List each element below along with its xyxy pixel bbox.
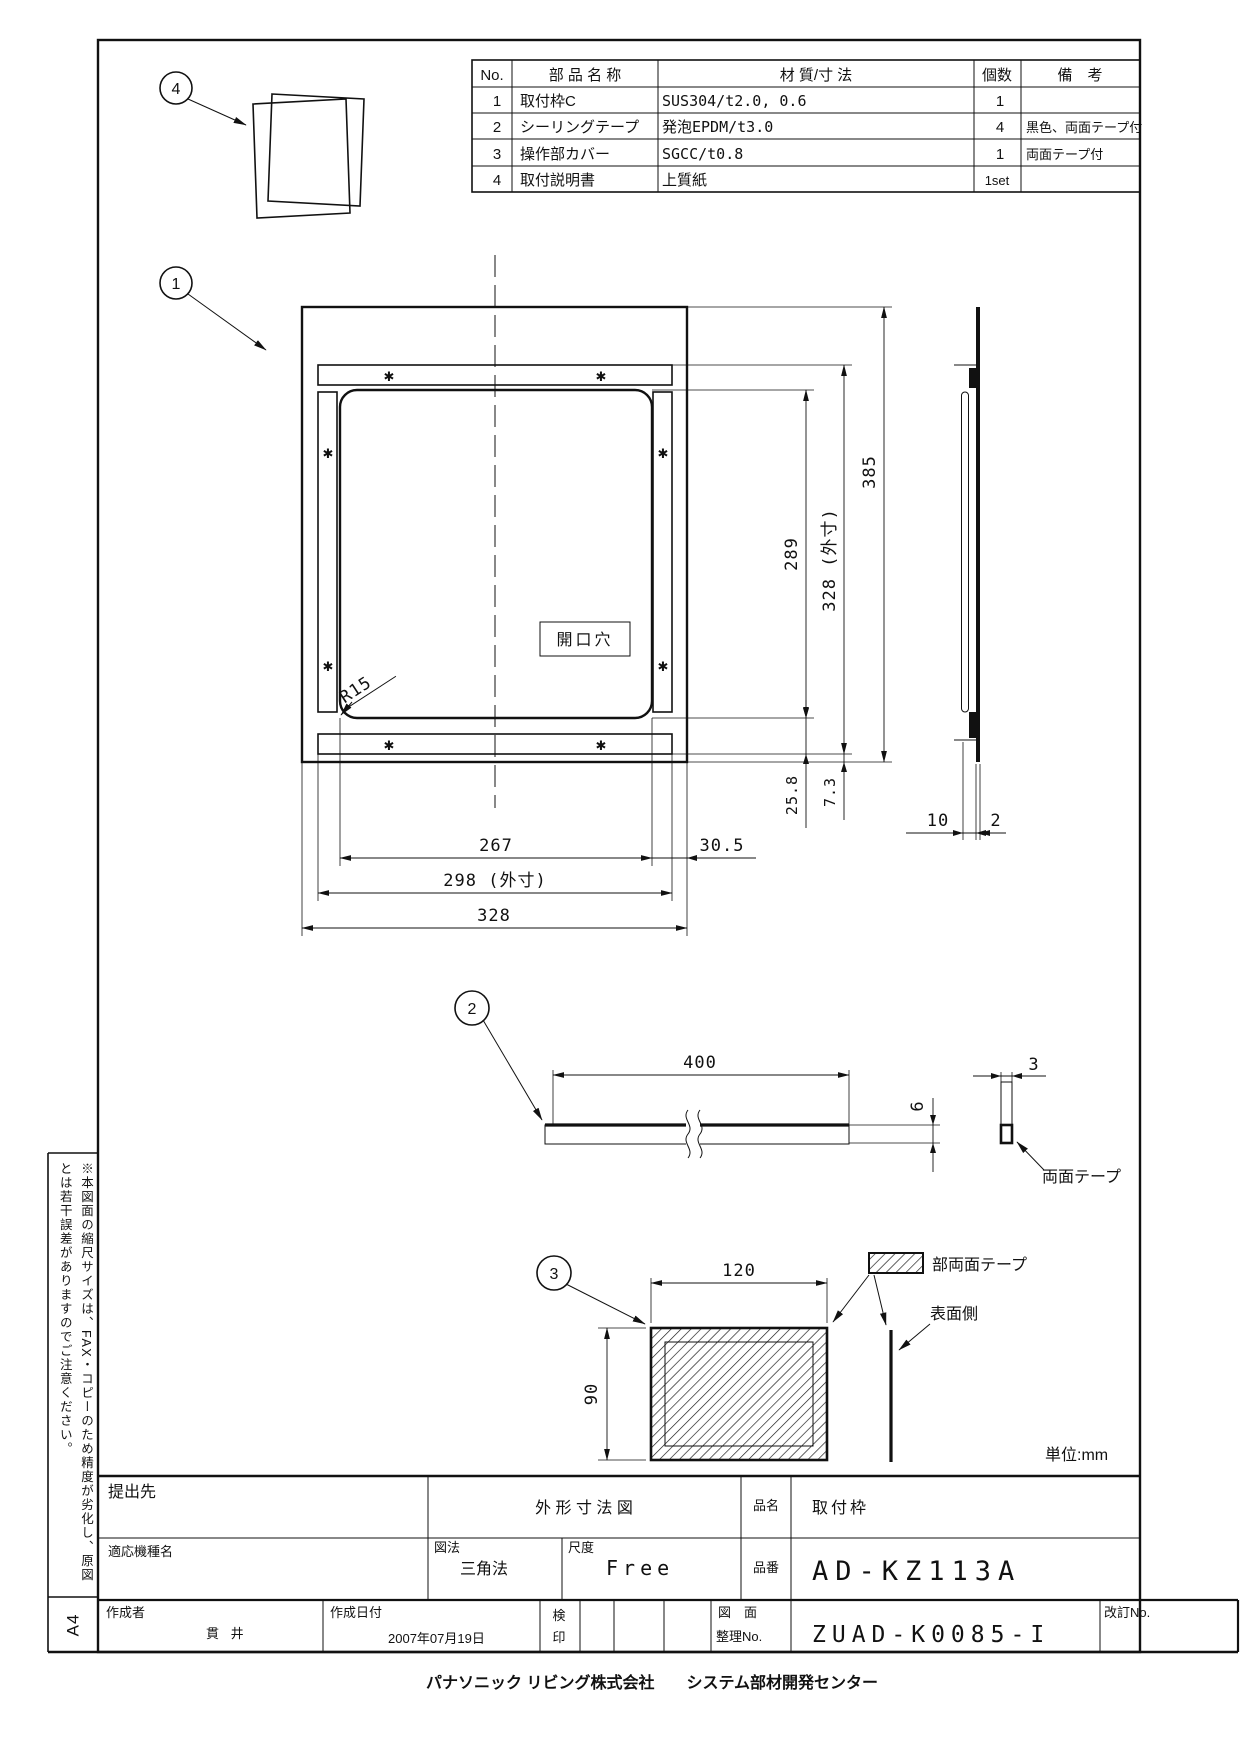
svg-text:1: 1 xyxy=(493,93,501,110)
col-header-qty: 個数 xyxy=(982,67,1012,84)
dim-298-outer: 298 (外寸) xyxy=(443,871,546,891)
front-view-vertical-dims: 289 328 (外寸) 385 25.8 7.3 xyxy=(782,307,884,828)
product-name: 取付枠 xyxy=(812,1499,869,1517)
tape-mark: ✱ xyxy=(658,659,669,674)
author-label: 作成者 xyxy=(106,1605,145,1620)
svg-text:操作部カバー: 操作部カバー xyxy=(520,146,610,163)
svg-text:黒色、両面テープ付: 黒色、両面テープ付 xyxy=(1026,120,1142,135)
stamp-label-1: 検 xyxy=(552,1608,565,1623)
dim-328-outer: 328 (外寸) xyxy=(820,508,840,611)
svg-text:3: 3 xyxy=(550,1266,559,1283)
tape-mark: ✱ xyxy=(384,738,395,753)
tape-mark: ✱ xyxy=(596,369,607,384)
drawing-number: ZUAD-K0085-I xyxy=(812,1622,1050,1648)
svg-text:1: 1 xyxy=(172,276,181,293)
revision-label: 改訂No. xyxy=(1104,1605,1150,1620)
dim-385: 385 xyxy=(860,455,880,489)
cover-outline xyxy=(651,1328,827,1460)
tape-section-top xyxy=(969,368,976,388)
balloon-3: 3 xyxy=(537,1256,645,1324)
balloon-2: 2 xyxy=(455,991,542,1120)
opening-label: 開口穴 xyxy=(556,631,613,649)
part-number: AD-KZ113A xyxy=(812,1556,1021,1587)
svg-text:SGCC/t0.8: SGCC/t0.8 xyxy=(662,145,743,163)
doc-type-title: 外 形 寸 法 図 xyxy=(535,1499,633,1517)
tape-edge-view xyxy=(1001,1082,1012,1125)
stamp-label-2: 印 xyxy=(552,1630,565,1645)
balloon-4: 4 xyxy=(160,72,246,125)
author-name: 貫 井 xyxy=(206,1626,248,1641)
frame-front-view: ✱ ✱ ✱ ✱ ✱ ✱ ✱ ✱ 開口穴 R15 xyxy=(302,255,687,808)
svg-text:2: 2 xyxy=(468,1001,477,1018)
applicable-models-label: 適応機種名 xyxy=(108,1544,173,1559)
radius-callout: R15 xyxy=(335,659,396,708)
tape-mark: ✱ xyxy=(384,369,395,384)
unit-note: 単位:mm xyxy=(1045,1446,1108,1464)
hatch-legend-swatch xyxy=(869,1253,923,1273)
date-label: 作成日付 xyxy=(330,1605,382,1620)
double-sided-tape-section xyxy=(1001,1125,1012,1143)
control-cover-view: 120 90 部両面テープ 表面側 xyxy=(582,1253,1027,1462)
dim-2: 2 xyxy=(990,811,1001,831)
drawing-sheet: No. 部 品 名 称 材 質/寸 法 個数 備 考 1 取付枠C SUS304… xyxy=(0,0,1240,1754)
dim-30-5: 30.5 xyxy=(700,836,745,856)
scale-label: 尺度 xyxy=(568,1540,594,1555)
col-header-no: No. xyxy=(480,67,503,84)
creation-date: 2007年07月19日 xyxy=(388,1631,485,1646)
sealing-tape-view: 400 6 3 両面テープ xyxy=(545,1053,1121,1186)
dim-25-8: 25.8 xyxy=(783,775,801,815)
projection-value: 三角法 xyxy=(460,1560,508,1578)
col-header-name: 部 品 名 称 xyxy=(549,67,622,84)
svg-text:1: 1 xyxy=(996,93,1004,110)
table-row: 4 取付説明書 上質紙 1set xyxy=(493,171,1010,189)
tape-side-profile xyxy=(962,392,969,712)
svg-text:上質紙: 上質紙 xyxy=(662,171,707,189)
hatch-legend-label: 部両面テープ xyxy=(932,1256,1027,1274)
dim-7-3: 7.3 xyxy=(821,777,839,807)
dim-328: 328 xyxy=(477,906,511,926)
dim-6: 6 xyxy=(908,1100,928,1111)
surface-side-label: 表面側 xyxy=(930,1305,978,1323)
tape-mark: ✱ xyxy=(658,446,669,461)
scale-value: Free xyxy=(606,1556,674,1580)
dim-400: 400 xyxy=(683,1053,717,1073)
svg-text:2: 2 xyxy=(493,119,501,136)
svg-text:シーリングテープ: シーリングテープ xyxy=(520,119,639,136)
dim-3: 3 xyxy=(1028,1055,1039,1075)
double-sided-tape-label: 両面テープ xyxy=(1042,1168,1121,1186)
projection-label: 図法 xyxy=(434,1540,460,1555)
table-row: 3 操作部カバー SGCC/t0.8 1 両面テープ付 xyxy=(493,145,1103,163)
col-header-material: 材 質/寸 法 xyxy=(780,66,853,84)
svg-text:1set: 1set xyxy=(985,173,1010,188)
sheet-border xyxy=(98,40,1140,1652)
dim-289: 289 xyxy=(782,537,802,571)
table-row: 1 取付枠C SUS304/t2.0, 0.6 1 xyxy=(493,92,1004,110)
svg-text:発泡EPDM/t3.0: 発泡EPDM/t3.0 xyxy=(662,118,773,136)
svg-text:4: 4 xyxy=(172,81,181,98)
svg-text:4: 4 xyxy=(493,172,501,189)
front-view-horizontal-dims: 267 30.5 298 (外寸) 328 xyxy=(302,836,756,928)
tape-mark: ✱ xyxy=(596,738,607,753)
col-header-remarks: 備 考 xyxy=(1057,67,1102,84)
title-block: 提出先 外 形 寸 法 図 品名 取付枠 適応機種名 図法 三角法 尺度 Fre… xyxy=(48,1476,1238,1652)
instruction-booklet-drawing xyxy=(253,94,364,218)
tape-section-bottom xyxy=(969,712,976,738)
dim-10: 10 xyxy=(927,811,949,831)
company-footer: パナソニック リビング株式会社 システム部材開発センター xyxy=(426,1673,878,1692)
svg-text:3: 3 xyxy=(493,146,501,163)
product-name-label: 品名 xyxy=(753,1498,779,1513)
dim-120: 120 xyxy=(722,1261,756,1281)
svg-text:取付枠C: 取付枠C xyxy=(520,93,576,110)
dim-90: 90 xyxy=(582,1383,602,1405)
opening-outline xyxy=(340,390,652,718)
svg-text:1: 1 xyxy=(996,146,1004,163)
svg-text:両面テープ付: 両面テープ付 xyxy=(1026,147,1103,162)
paper-size-label: A4 xyxy=(48,1598,98,1652)
submit-to-label: 提出先 xyxy=(108,1483,156,1501)
parts-table: No. 部 品 名 称 材 質/寸 法 個数 備 考 1 取付枠C SUS304… xyxy=(472,60,1142,192)
balloon-1: 1 xyxy=(160,267,266,350)
drawing-no-label-2: 整理No. xyxy=(716,1629,762,1644)
tape-mark: ✱ xyxy=(323,446,334,461)
frame-side-view: 10 2 xyxy=(906,307,1006,840)
tape-mark: ✱ xyxy=(323,659,334,674)
dim-267: 267 xyxy=(479,836,513,856)
svg-text:4: 4 xyxy=(996,119,1004,136)
drawing-canvas: No. 部 品 名 称 材 質/寸 法 個数 備 考 1 取付枠C SUS304… xyxy=(0,0,1240,1754)
part-number-label: 品番 xyxy=(753,1560,779,1575)
drawing-no-label-1: 図 面 xyxy=(718,1605,757,1620)
svg-text:取付説明書: 取付説明書 xyxy=(520,172,595,189)
fax-copy-note: ※本図面の縮尺サイズは、FAX・コピーのため精度が劣化し、原図とは若干誤差があり… xyxy=(52,1162,96,1590)
table-row: 2 シーリングテープ 発泡EPDM/t3.0 4 黒色、両面テープ付 xyxy=(493,118,1142,136)
svg-text:SUS304/t2.0, 0.6: SUS304/t2.0, 0.6 xyxy=(662,92,807,110)
